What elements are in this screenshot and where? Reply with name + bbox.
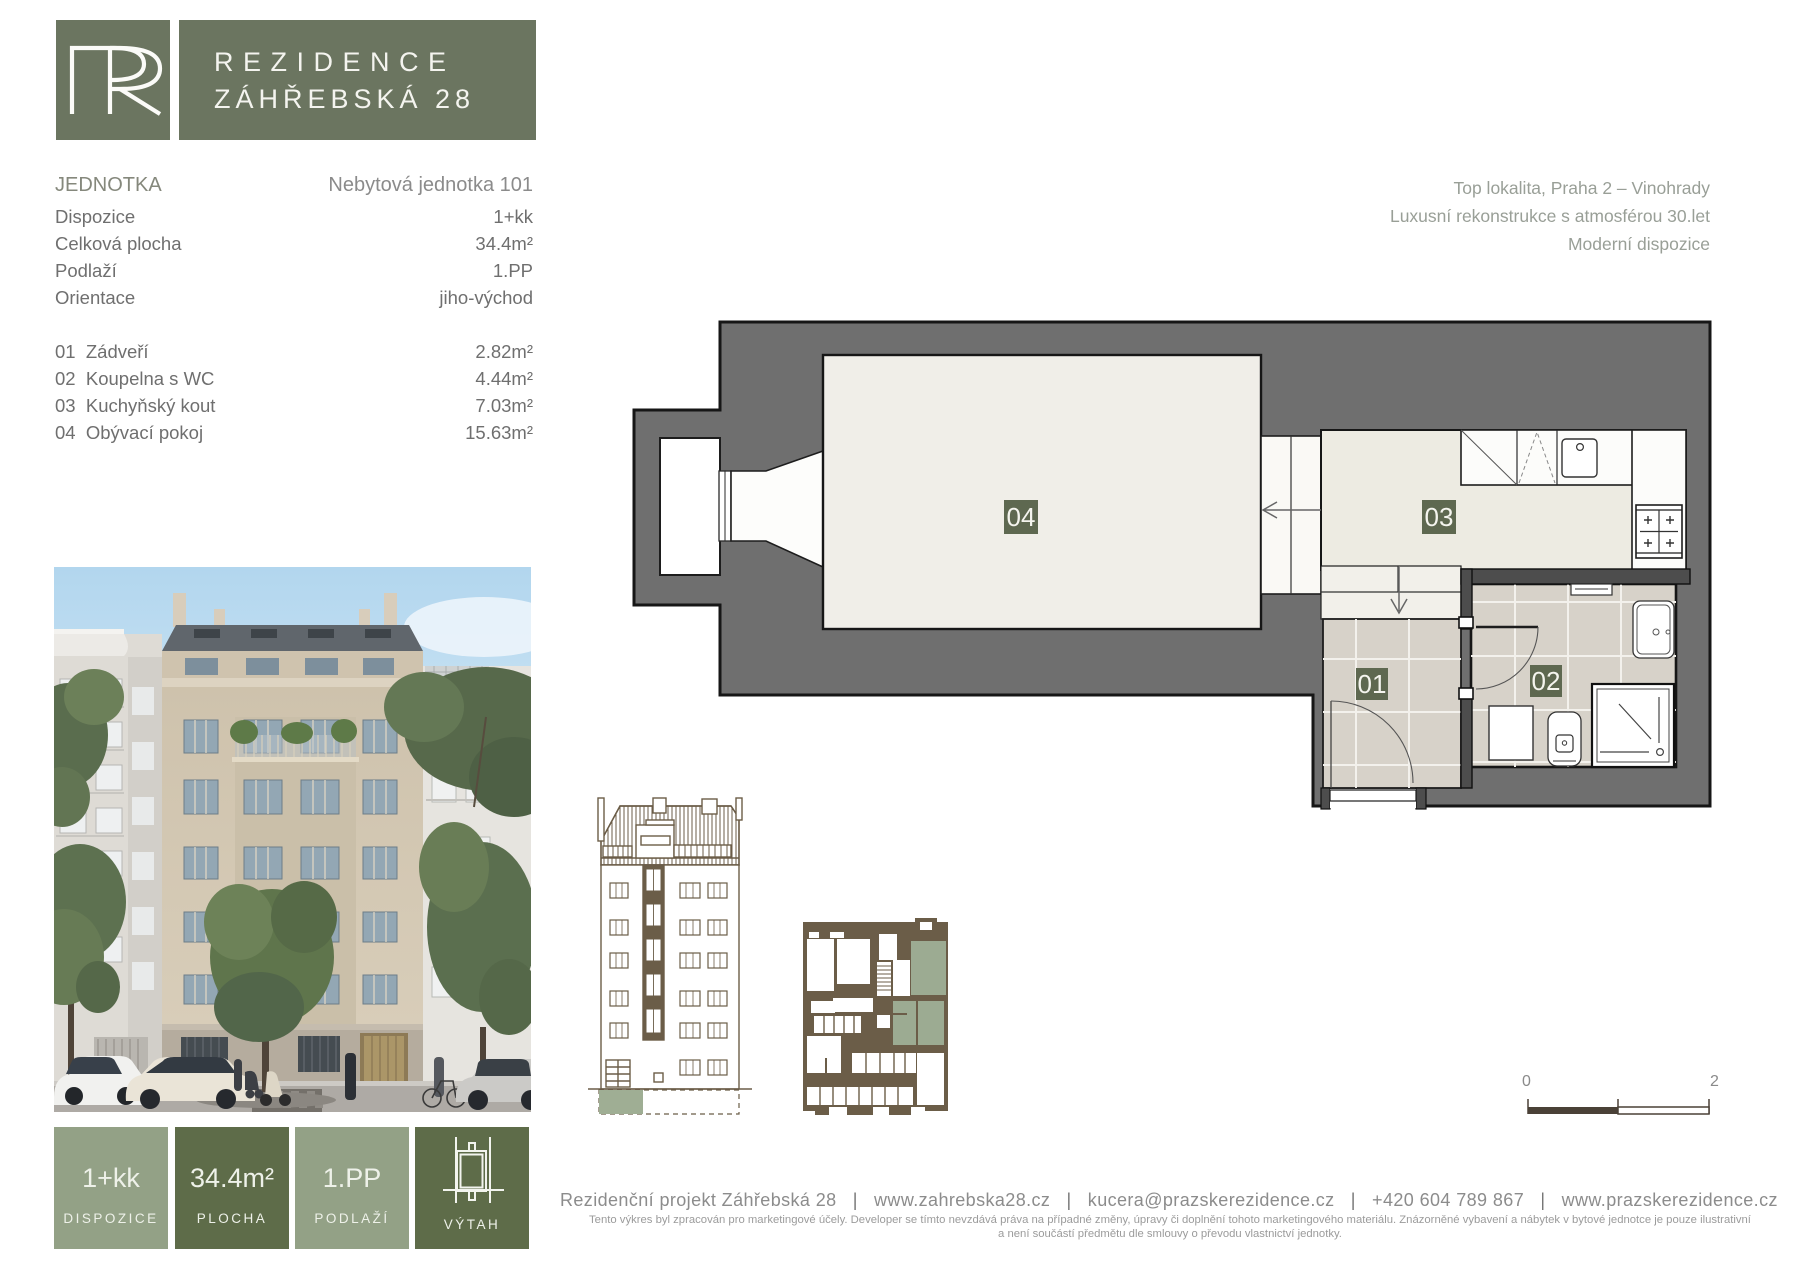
- svg-text:0: 0: [1522, 1073, 1531, 1090]
- svg-text:01: 01: [1358, 669, 1387, 699]
- svg-text:2: 2: [1710, 1073, 1719, 1090]
- svg-text:04: 04: [1007, 502, 1036, 532]
- svg-text:02: 02: [1532, 666, 1561, 696]
- svg-text:03: 03: [1425, 502, 1454, 532]
